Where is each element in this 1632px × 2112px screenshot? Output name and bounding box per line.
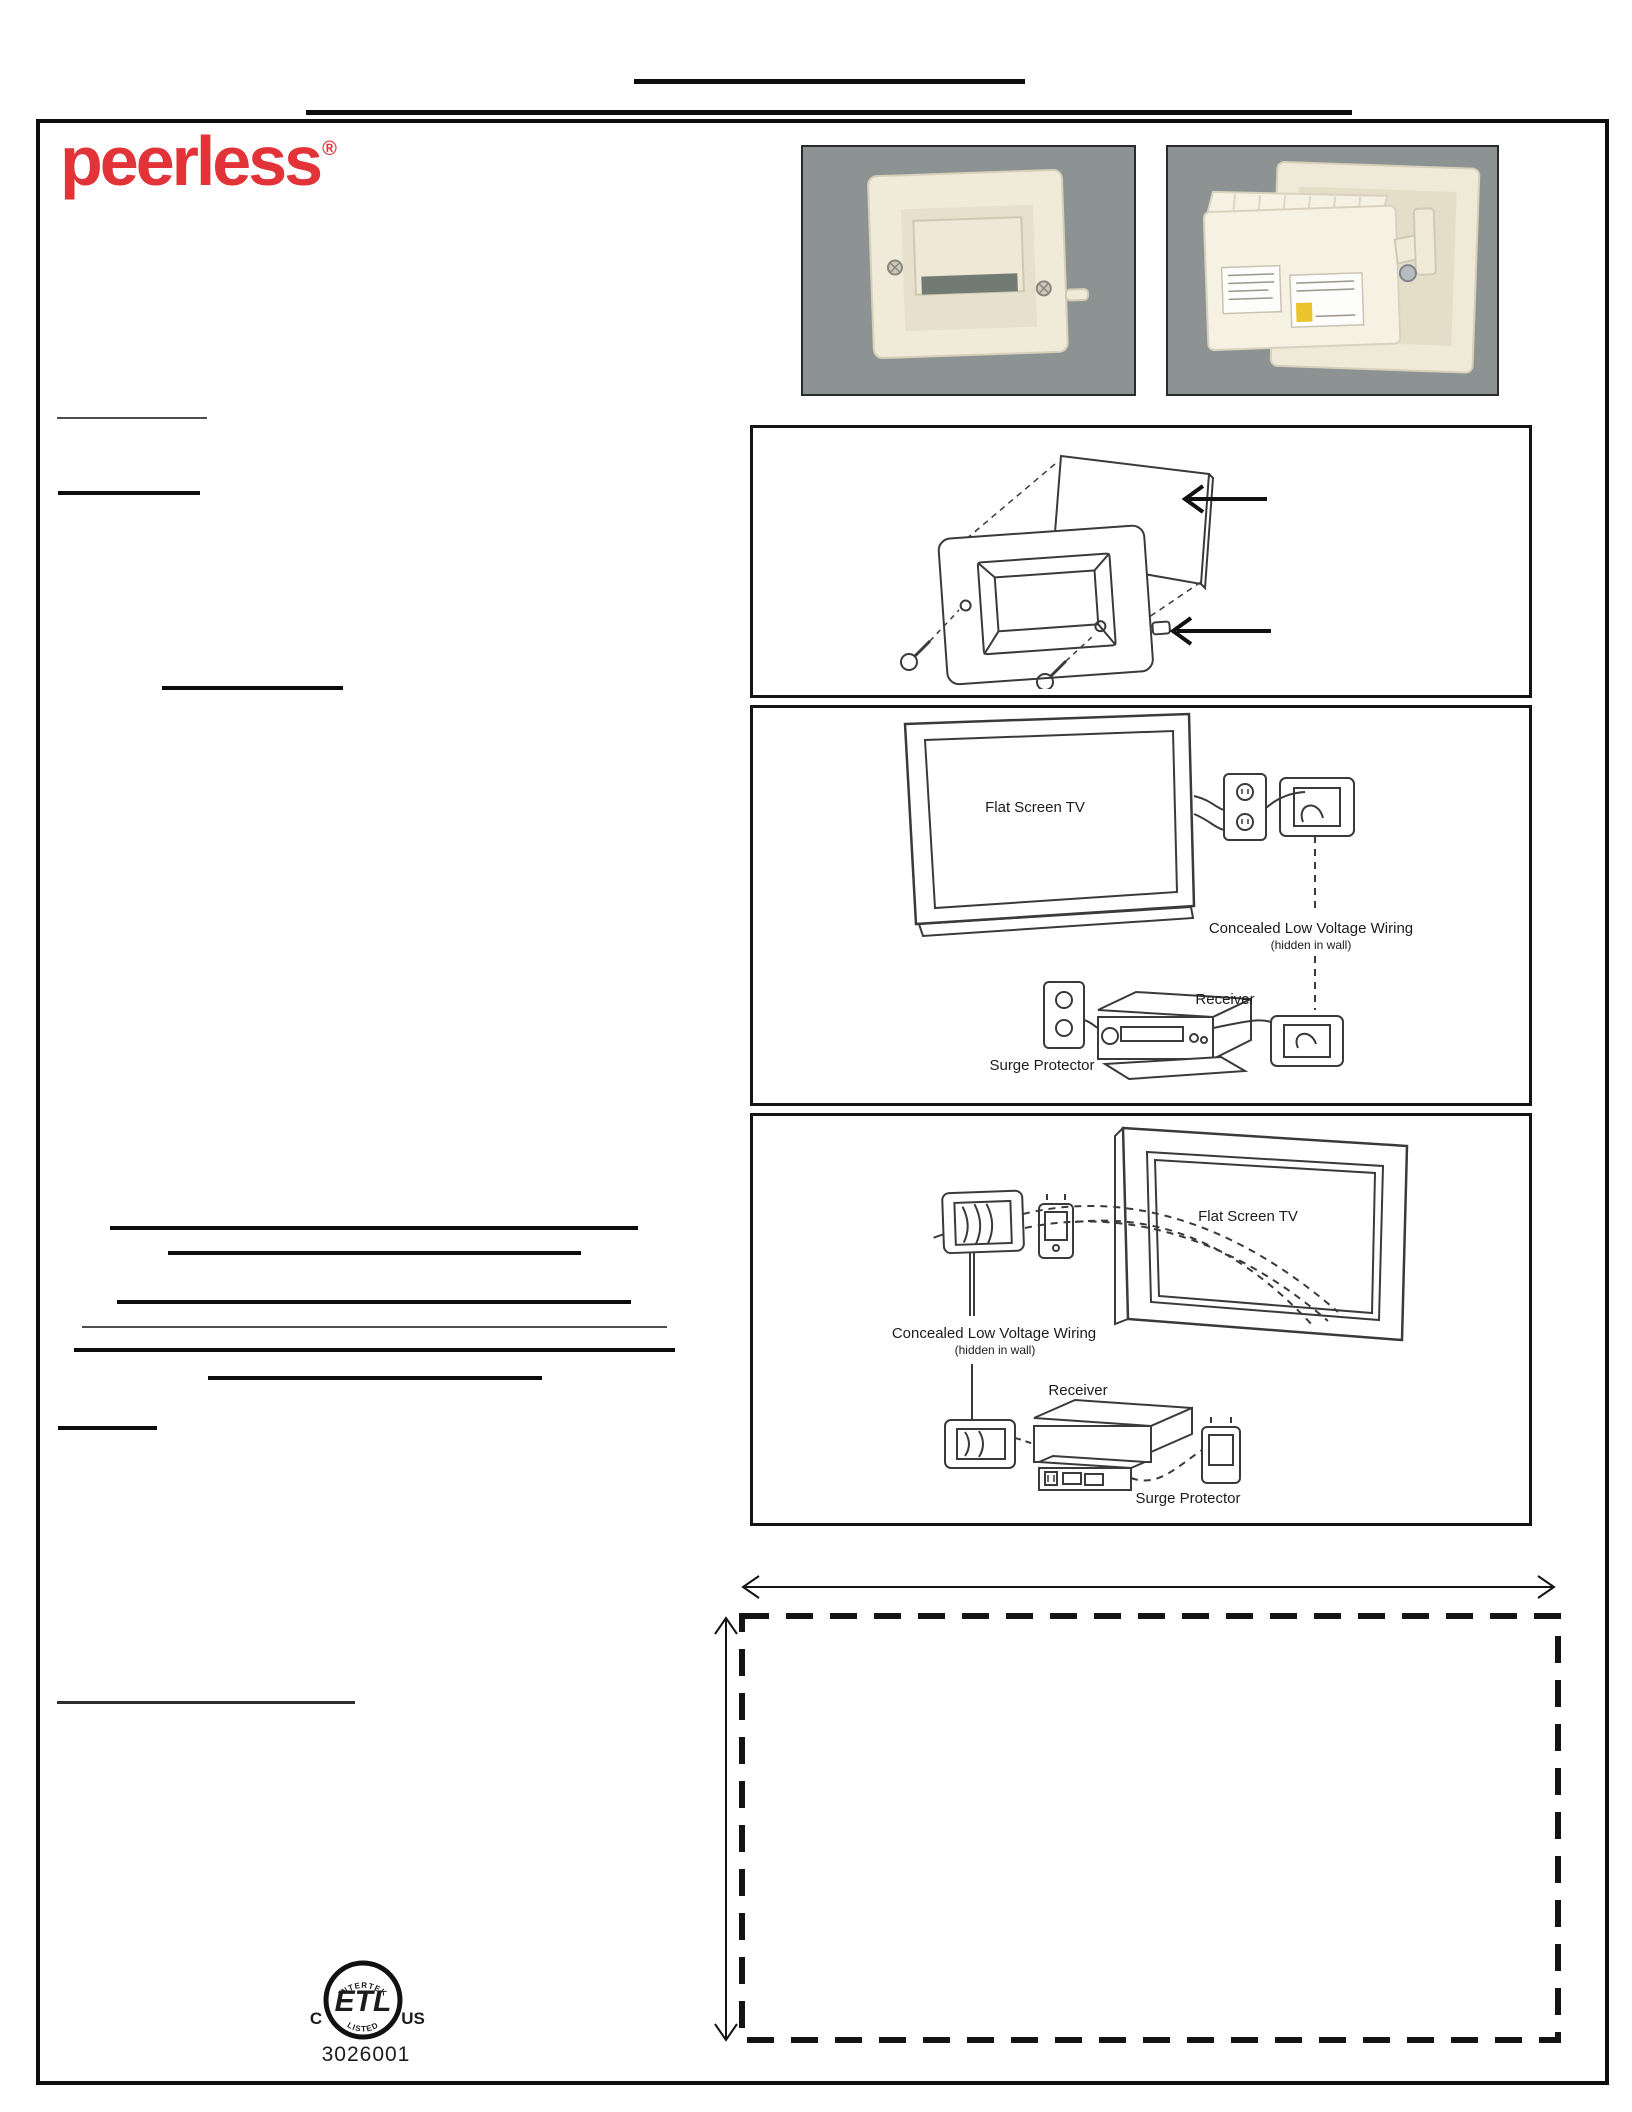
install-diagram-panel bbox=[750, 425, 1532, 698]
receiver-illustration-b bbox=[1015, 1400, 1192, 1462]
surge-protector-b bbox=[1039, 1456, 1145, 1490]
list-underline-2 bbox=[168, 1251, 581, 1255]
etl-mark-drawing: ETL INTERTEK LISTED C US 3026001 bbox=[300, 1950, 440, 2080]
wiring-diagram-a: Flat Screen TV Concealed Low Voltage Wir… bbox=[753, 708, 1523, 1097]
peerless-logo: peerless® bbox=[60, 126, 335, 196]
wiring-diagram-a-panel: Flat Screen TV Concealed Low Voltage Wir… bbox=[750, 705, 1532, 1106]
etl-c-text: C bbox=[310, 2009, 322, 2028]
receiver-label-b: Receiver bbox=[1048, 1382, 1107, 1399]
section-underline-3 bbox=[162, 686, 343, 690]
list-underline-4 bbox=[82, 1326, 667, 1328]
section-underline-2 bbox=[58, 491, 200, 495]
registered-mark: ® bbox=[322, 138, 337, 160]
listed-arc-text: LISTED bbox=[346, 2020, 381, 2033]
receiver-label: Receiver bbox=[1195, 991, 1254, 1008]
tv-illustration bbox=[905, 714, 1194, 936]
height-dimension-arrow bbox=[715, 1618, 737, 2040]
title-underline bbox=[634, 79, 1025, 84]
etl-mark: ETL INTERTEK LISTED C US 3026001 bbox=[300, 1950, 440, 2080]
recessed-plate-top bbox=[932, 1191, 1024, 1254]
tv-label: Flat Screen TV bbox=[985, 799, 1085, 816]
product-photo-rear bbox=[1166, 145, 1499, 396]
power-outlet-upper bbox=[1224, 774, 1266, 840]
concealed-wiring-label: Concealed Low Voltage Wiring bbox=[1209, 920, 1413, 937]
surge-protector-label-b: Surge Protector bbox=[1135, 1490, 1240, 1507]
instruction-sheet-page: peerless® bbox=[0, 0, 1632, 2112]
wiring-diagram-b-panel: Flat Screen TV Concealed Low Voltage Wir… bbox=[750, 1113, 1532, 1526]
section-underline-4 bbox=[57, 1701, 355, 1704]
recessed-plate-upper bbox=[1266, 778, 1354, 836]
list-underline-1 bbox=[110, 1226, 638, 1230]
install-diagram bbox=[753, 428, 1523, 689]
recessed-plate-drawing bbox=[938, 524, 1173, 685]
list-underline-6 bbox=[208, 1376, 542, 1380]
etl-us-text: US bbox=[401, 2009, 425, 2028]
wall-plate-front-photo bbox=[803, 147, 1134, 394]
subtitle-underline bbox=[306, 110, 1352, 115]
section-underline-1 bbox=[57, 417, 207, 419]
cutout-template bbox=[690, 1555, 1610, 2060]
etl-number: 3026001 bbox=[322, 2043, 411, 2066]
wall-plate-rear-photo bbox=[1168, 147, 1497, 394]
plug-connector-top bbox=[1039, 1194, 1073, 1258]
hidden-in-wall-label: (hidden in wall) bbox=[1271, 938, 1352, 952]
tv-illustration-b bbox=[1115, 1128, 1407, 1340]
hidden-in-wall-label-b: (hidden in wall) bbox=[955, 1343, 1036, 1357]
note-underline bbox=[58, 1426, 157, 1430]
recessed-plate-bottom bbox=[945, 1420, 1015, 1468]
product-photo-front bbox=[801, 145, 1136, 396]
surge-protector-label: Surge Protector bbox=[989, 1057, 1094, 1074]
list-underline-3 bbox=[117, 1300, 631, 1304]
surge-protector-bar bbox=[1105, 1057, 1245, 1079]
recessed-plate-front-illustration bbox=[868, 169, 1090, 358]
width-dimension-arrow bbox=[743, 1576, 1554, 1598]
tv-label-b: Flat Screen TV bbox=[1198, 1208, 1298, 1225]
cutout-template-drawing bbox=[690, 1555, 1610, 2060]
concealed-wiring-label-b: Concealed Low Voltage Wiring bbox=[892, 1325, 1096, 1342]
power-outlet-lower bbox=[1044, 982, 1084, 1048]
plug-connector-bottom bbox=[1202, 1417, 1240, 1483]
list-underline-5 bbox=[74, 1348, 675, 1352]
wiring-diagram-b: Flat Screen TV Concealed Low Voltage Wir… bbox=[753, 1116, 1523, 1517]
peerless-logo-text: peerless bbox=[60, 122, 320, 200]
template-dashed-outline bbox=[742, 1616, 1558, 2040]
